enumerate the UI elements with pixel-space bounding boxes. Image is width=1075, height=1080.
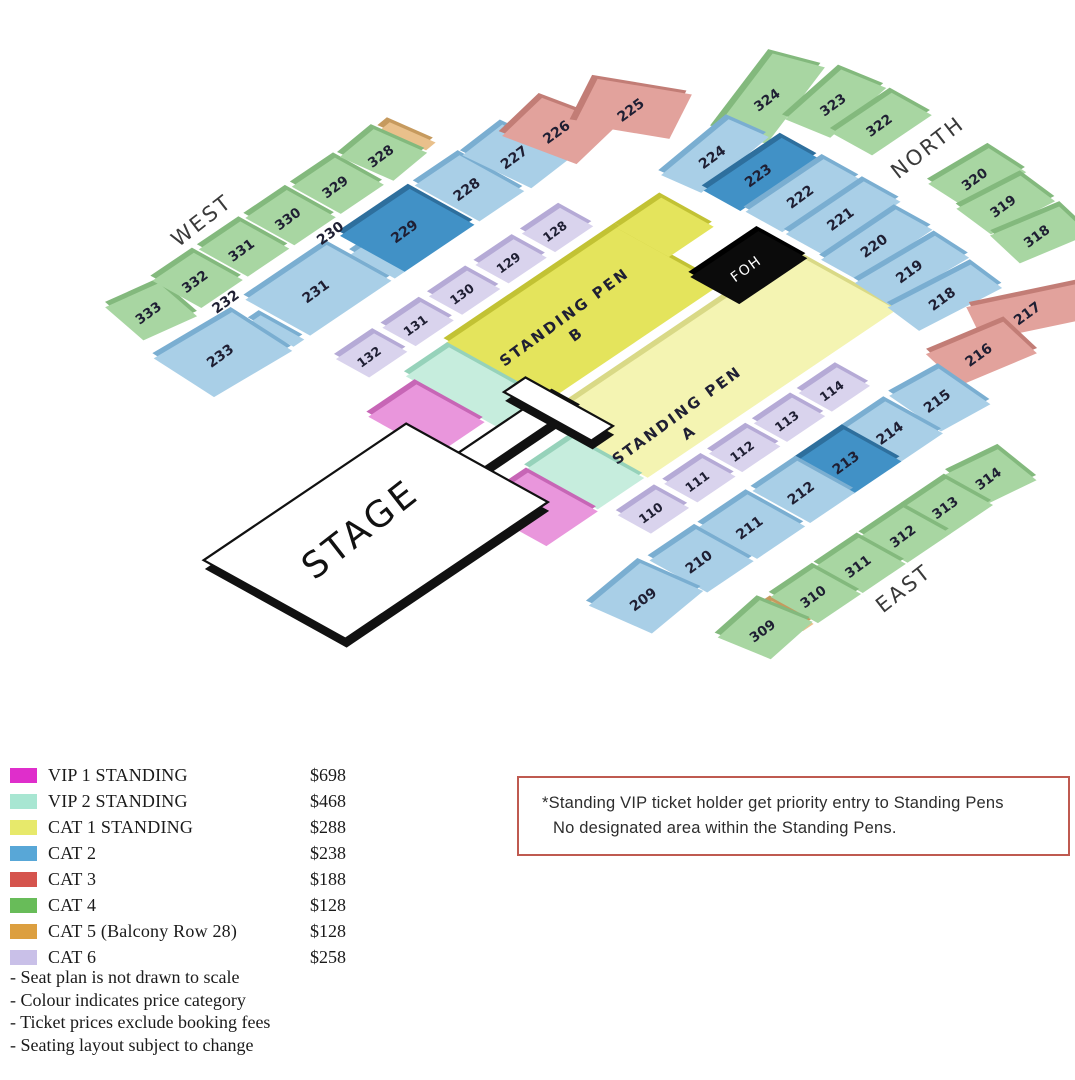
legend-color-swatch (10, 950, 37, 965)
legend-price: $288 (310, 817, 346, 838)
legend-price: $188 (310, 869, 346, 890)
vip-notice-line1: *Standing VIP ticket holder get priority… (542, 791, 1054, 816)
legend-category-label: CAT 2 (48, 843, 310, 864)
legend-row: CAT 4$128 (10, 892, 346, 918)
legend-category-label: VIP 2 STANDING (48, 791, 310, 812)
footnote-line: - Colour indicates price category (10, 989, 270, 1012)
legend-price: $238 (310, 843, 346, 864)
legend-color-swatch (10, 846, 37, 861)
price-legend: VIP 1 STANDING$698VIP 2 STANDING$468CAT … (10, 762, 346, 970)
legend-color-swatch (10, 898, 37, 913)
legend-color-swatch (10, 820, 37, 835)
legend-color-swatch (10, 794, 37, 809)
vip-notice-box: *Standing VIP ticket holder get priority… (517, 776, 1070, 856)
footnote-line: - Ticket prices exclude booking fees (10, 1011, 270, 1034)
footnote-line: - Seat plan is not drawn to scale (10, 966, 270, 989)
legend-row: CAT 1 STANDING$288 (10, 814, 346, 840)
legend-category-label: CAT 4 (48, 895, 310, 916)
legend-row: VIP 1 STANDING$698 (10, 762, 346, 788)
legend-category-label: CAT 5 (Balcony Row 28) (48, 921, 310, 942)
legend-category-label: VIP 1 STANDING (48, 765, 310, 786)
legend-color-swatch (10, 872, 37, 887)
legend-row: CAT 5 (Balcony Row 28)$128 (10, 918, 346, 944)
legend-category-label: CAT 6 (48, 947, 310, 968)
legend-price: $128 (310, 921, 346, 942)
footnotes: - Seat plan is not drawn to scale- Colou… (10, 966, 270, 1056)
legend-row: CAT 2$238 (10, 840, 346, 866)
legend-price: $698 (310, 765, 346, 786)
legend-color-swatch (10, 924, 37, 939)
legend-row: VIP 2 STANDING$468 (10, 788, 346, 814)
seating-map: 3333323313303293283243233223203193183143… (0, 0, 1075, 745)
legend-category-label: CAT 1 STANDING (48, 817, 310, 838)
legend-color-swatch (10, 768, 37, 783)
seat-plan-page: 3333323313303293283243233223203193183143… (0, 0, 1075, 1080)
footnote-line: - Seating layout subject to change (10, 1034, 270, 1057)
legend-price: $258 (310, 947, 346, 968)
legend-row: CAT 3$188 (10, 866, 346, 892)
vip-notice-line2: No designated area within the Standing P… (542, 816, 1054, 841)
legend-price: $468 (310, 791, 346, 812)
legend-category-label: CAT 3 (48, 869, 310, 890)
legend-price: $128 (310, 895, 346, 916)
